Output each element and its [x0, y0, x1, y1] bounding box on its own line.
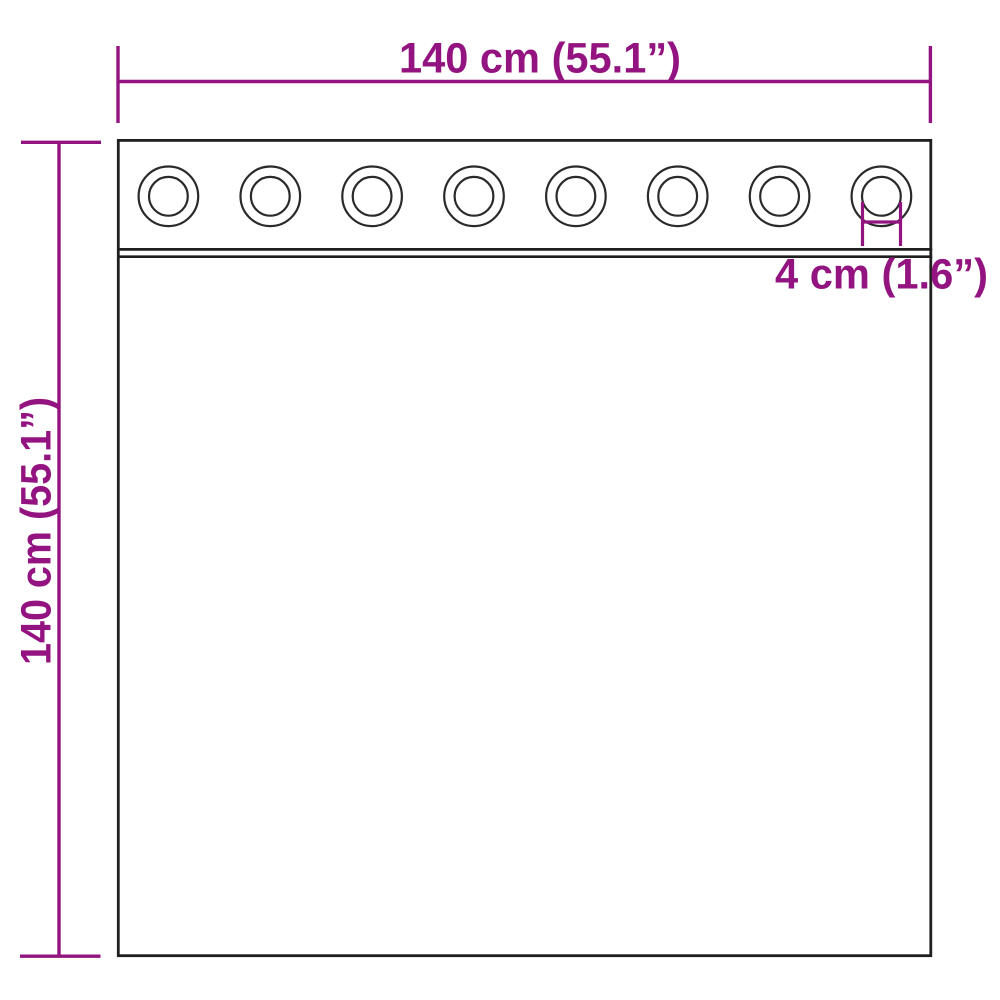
svg-text:140 cm (55.1”): 140 cm (55.1”)	[13, 397, 61, 665]
svg-text:4 cm (1.6”): 4 cm (1.6”)	[775, 251, 988, 299]
svg-text:140 cm (55.1”): 140 cm (55.1”)	[399, 35, 681, 83]
